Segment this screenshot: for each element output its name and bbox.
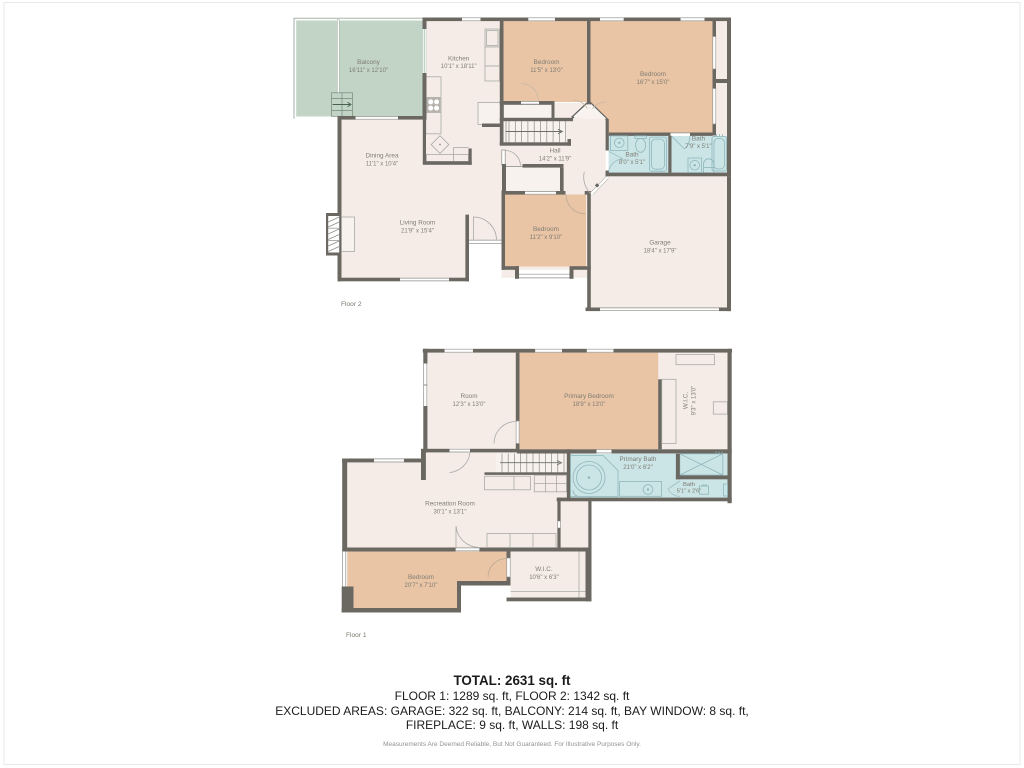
svg-text:20'7" x 7'10": 20'7" x 7'10" (405, 583, 438, 589)
svg-text:14'2" x 11'9": 14'2" x 11'9" (539, 156, 571, 162)
svg-text:8'0" x 5'1": 8'0" x 5'1" (619, 160, 645, 166)
svg-text:Living Room: Living Room (400, 220, 436, 227)
svg-text:30'1" x 13'1": 30'1" x 13'1" (434, 509, 467, 515)
svg-text:21'9" x 15'4": 21'9" x 15'4" (401, 228, 434, 234)
svg-text:Bath: Bath (625, 152, 639, 159)
svg-text:11'2" x 9'10": 11'2" x 9'10" (530, 235, 562, 241)
svg-text:Garage: Garage (649, 240, 671, 247)
svg-text:Bedroom: Bedroom (533, 226, 559, 233)
svg-text:W.I.C.: W.I.C. (683, 392, 690, 410)
svg-text:11'1" x 10'4": 11'1" x 10'4" (366, 161, 398, 167)
svg-text:18'9" x 13'0": 18'9" x 13'0" (573, 402, 606, 408)
svg-text:7'9" x 5'1": 7'9" x 5'1" (685, 144, 711, 150)
svg-text:10'6" x 6'3": 10'6" x 6'3" (529, 575, 559, 581)
svg-text:Kitchen: Kitchen (448, 56, 470, 63)
svg-text:16'7" x 15'0": 16'7" x 15'0" (637, 80, 670, 86)
svg-text:Bedroom: Bedroom (408, 574, 434, 581)
svg-text:5'1" x 2'6": 5'1" x 2'6" (677, 489, 701, 495)
svg-text:9'3" x 13'0": 9'3" x 13'0" (691, 386, 697, 416)
svg-text:12'3" x 13'0": 12'3" x 13'0" (453, 402, 486, 408)
svg-text:21'0" x 6'2": 21'0" x 6'2" (623, 465, 653, 471)
svg-text:10'1" x 18'11": 10'1" x 18'11" (441, 64, 477, 70)
svg-text:Bath: Bath (683, 482, 695, 488)
svg-text:16'11" x 12'10": 16'11" x 12'10" (349, 68, 388, 74)
svg-text:Room: Room (460, 393, 477, 400)
svg-text:Primary Bedroom: Primary Bedroom (564, 393, 614, 400)
svg-text:W.I.C.: W.I.C. (535, 566, 553, 573)
svg-text:Floor 1: Floor 1 (346, 632, 367, 639)
svg-text:Floor 2: Floor 2 (341, 301, 362, 308)
svg-text:Bedroom: Bedroom (534, 59, 560, 66)
svg-text:Dining Area: Dining Area (365, 153, 398, 160)
svg-text:18'4" x 17'9": 18'4" x 17'9" (644, 248, 677, 254)
svg-text:Balcony: Balcony (357, 59, 381, 66)
svg-text:Bedroom: Bedroom (640, 71, 666, 78)
svg-text:11'5" x 13'0": 11'5" x 13'0" (530, 68, 562, 74)
svg-text:Hall: Hall (549, 148, 560, 155)
svg-text:Bath: Bath (692, 136, 706, 143)
svg-text:Primary Bath: Primary Bath (620, 456, 657, 463)
svg-text:Recreation Room: Recreation Room (425, 501, 475, 508)
